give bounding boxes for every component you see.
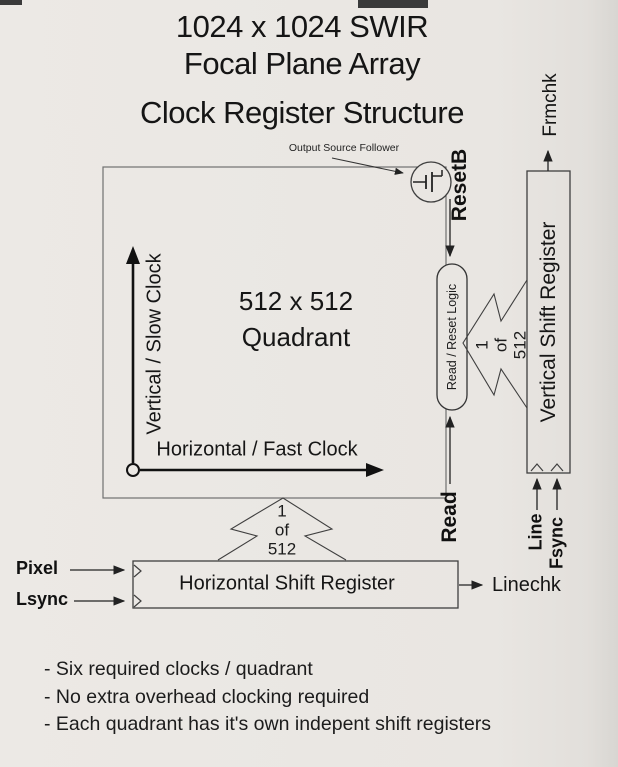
- fsync-label: Fsync: [547, 517, 568, 569]
- vertical-shift-register-label: Vertical Shift Register: [537, 222, 561, 423]
- mux-left-label: 1 of 512: [473, 331, 530, 359]
- quadrant-label: 512 x 512 Quadrant: [239, 283, 353, 355]
- mux-left-line1: 1: [473, 331, 492, 359]
- scan-artifact: [358, 0, 428, 8]
- clock-input-chevron: [134, 595, 141, 607]
- read-reset-logic-label: Read / Reset Logic: [445, 284, 459, 390]
- mux-left-line3: 512: [511, 331, 530, 359]
- output-source-follower-label: Output Source Follower: [289, 142, 399, 154]
- horizontal-shift-register-label: Horizontal Shift Register: [179, 573, 395, 596]
- mux-left-line2: of: [492, 331, 511, 359]
- mux-up-line1: 1: [268, 502, 296, 521]
- clock-input-chevron: [134, 565, 141, 577]
- quadrant-label-line2: Quadrant: [239, 319, 353, 355]
- clock-input-chevron: [531, 464, 543, 471]
- lsync-label: Lsync: [16, 589, 68, 610]
- frmchk-label: Frmchk: [540, 73, 562, 136]
- pixel-label: Pixel: [16, 558, 58, 579]
- page-title-line2: Focal Plane Array: [0, 46, 604, 82]
- read-label: Read: [438, 491, 462, 542]
- horizontal-axis-label: Horizontal / Fast Clock: [156, 439, 357, 462]
- note-item: - Six required clocks / quadrant: [44, 656, 491, 684]
- page-title-line1: 1024 x 1024 SWIR: [0, 9, 604, 45]
- mux-up-line2: of: [268, 521, 296, 540]
- line-label: Line: [526, 513, 547, 550]
- vertical-axis-label: Vertical / Slow Clock: [144, 253, 167, 434]
- resetb-label: ResetB: [448, 149, 472, 221]
- osf-pointer-arrow: [332, 158, 403, 173]
- mosfet-icon: [411, 162, 451, 202]
- quadrant-label-line1: 512 x 512: [239, 283, 353, 319]
- scanned-diagram-page: 1024 x 1024 SWIR Focal Plane Array Clock…: [0, 0, 618, 767]
- clock-input-chevron: [551, 464, 563, 471]
- scan-artifact: [0, 0, 22, 5]
- note-item: - Each quadrant has it's own indepent sh…: [44, 711, 491, 739]
- linechk-label: Linechk: [492, 574, 561, 597]
- mux-up-label: 1 of 512: [268, 502, 296, 559]
- mux-up-line3: 512: [268, 540, 296, 559]
- page-title-line3: Clock Register Structure: [0, 95, 604, 131]
- note-item: - No extra overhead clocking required: [44, 684, 491, 712]
- notes: - Six required clocks / quadrant - No ex…: [44, 656, 491, 739]
